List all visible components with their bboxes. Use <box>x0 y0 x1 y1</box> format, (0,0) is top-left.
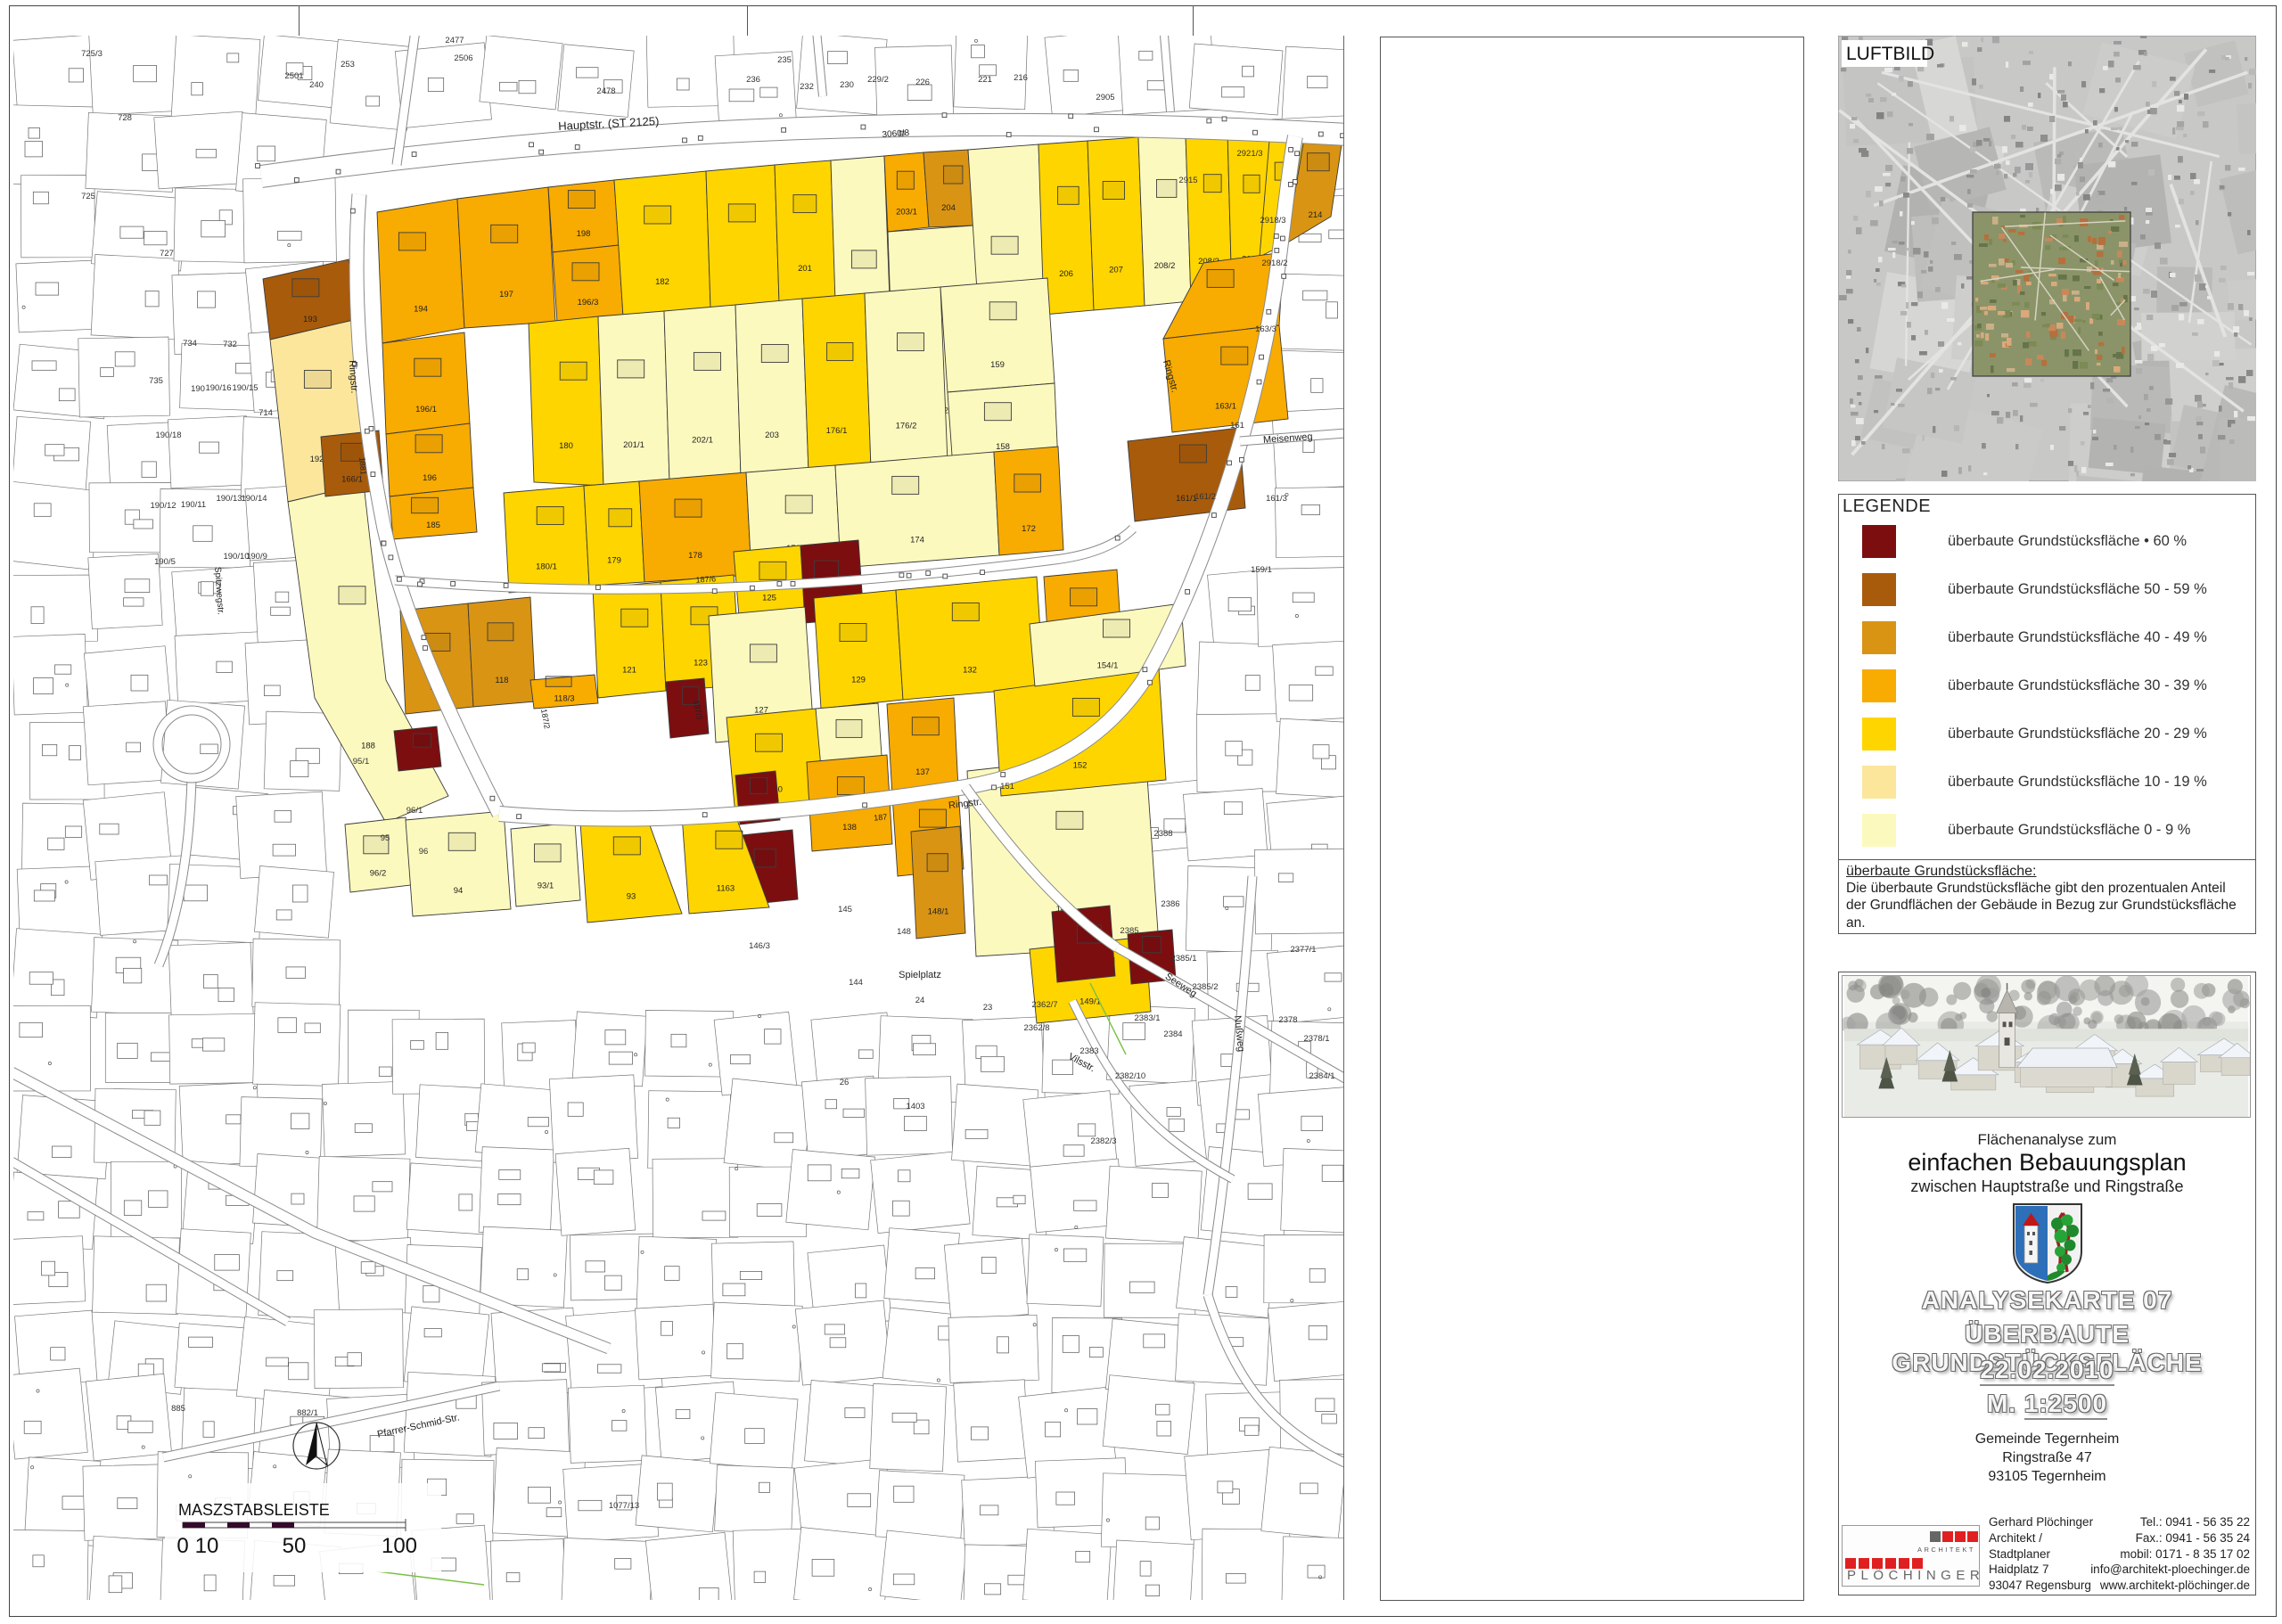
parcel-label: 190/12 <box>150 501 176 511</box>
parcel-label: 144 <box>849 978 863 988</box>
parcel-label: 216 <box>1014 73 1028 83</box>
svg-text:198: 198 <box>577 229 591 239</box>
parcel-label: 2385 <box>1120 926 1138 936</box>
svg-text:208/2: 208/2 <box>1154 261 1176 271</box>
svg-text:206: 206 <box>1059 269 1073 279</box>
parcel-label: 725/3 <box>81 49 103 59</box>
parcel-label: 734 <box>183 339 197 349</box>
heading-scale: M. 1:2500 <box>1839 1390 2255 1418</box>
logo-word-ploechinger: PLÖCHINGER <box>1847 1568 1984 1583</box>
parcel-label: 2477 <box>445 36 464 45</box>
parcel-label: 148 <box>897 927 911 937</box>
parcel-label: 732 <box>223 340 237 349</box>
street-label: 187/6 <box>695 574 716 585</box>
map-parcel <box>706 165 779 308</box>
aerial-photo: LUFTBILD <box>1838 36 2256 481</box>
svg-text:152: 152 <box>1073 761 1088 771</box>
svg-text:180/1: 180/1 <box>536 562 557 572</box>
parcel-label: 2501 <box>284 71 303 81</box>
parcel-label: 2382/3 <box>1090 1136 1116 1146</box>
parcel-label: 190/13 <box>216 494 242 504</box>
svg-text:201: 201 <box>798 264 812 274</box>
map-parcel-196 <box>386 423 473 496</box>
svg-text:174: 174 <box>910 535 924 545</box>
map-parcel-201/1 <box>598 311 669 486</box>
parcel-label: 232 <box>800 82 814 92</box>
parcel-label: 2918/3 <box>1260 216 1285 226</box>
map-parcel-179 <box>584 481 644 586</box>
parcel-label: 161 <box>1230 421 1244 431</box>
map-parcel-148/1 <box>911 826 965 939</box>
scale-bar: MASZSTABSLEISTE01050100 <box>165 1483 441 1572</box>
luftbild-panel: LUFTBILD <box>1838 36 2256 481</box>
parcel-label: 236 <box>746 75 760 85</box>
legend-rows: überbaute Grundstücksfläche • 60 %überba… <box>1839 517 2255 854</box>
parcel-label: 190/11 <box>181 500 206 510</box>
legend-item: überbaute Grundstücksfläche 0 - 9 % <box>1839 806 2255 854</box>
map-parcel <box>394 726 441 771</box>
parcel-label: 1403 <box>906 1102 924 1111</box>
parcel-label: 145 <box>838 905 852 915</box>
title-subtitle1: Flächenanalyse zum <box>1839 1131 2255 1149</box>
logo-word-architekt: ARCHITEKT <box>1917 1546 1975 1554</box>
map-parcel-94 <box>406 811 511 916</box>
parcel-label: 2385/1 <box>1170 954 1196 964</box>
parcel-label: 727 <box>160 249 174 258</box>
svg-text:203/1: 203/1 <box>896 207 917 217</box>
parcel-label: 725 <box>81 192 95 201</box>
parcel-label: 2378 <box>1278 1015 1297 1025</box>
legend-swatch <box>1862 621 1896 654</box>
parcel-label: 885 <box>171 1404 185 1414</box>
parcel-label: 2386 <box>1161 899 1179 909</box>
scale-tick: 10 <box>195 1534 219 1558</box>
parcel-label: 190/15 <box>232 383 258 393</box>
svg-text:125: 125 <box>762 594 776 603</box>
svg-text:204: 204 <box>941 203 956 213</box>
svg-text:182: 182 <box>655 277 669 287</box>
legend-title: LEGENDE <box>1839 495 2255 517</box>
legend-swatch <box>1862 814 1896 847</box>
map-parcel-196/3 <box>553 245 623 322</box>
legend-item: überbaute Grundstücksfläche 50 - 59 % <box>1839 565 2255 613</box>
svg-text:176/1: 176/1 <box>826 426 848 436</box>
svg-text:194: 194 <box>414 304 428 314</box>
legend-item: überbaute Grundstücksfläche 10 - 19 % <box>1839 758 2255 806</box>
parcel-label: 190 <box>191 384 205 394</box>
parcel-label: 161/3 <box>1266 494 1287 504</box>
svg-text:193: 193 <box>303 315 317 324</box>
map-parcel-96/2 <box>345 817 411 892</box>
svg-text:203: 203 <box>765 431 779 440</box>
map-parcel-180 <box>529 316 603 486</box>
heading-date: 22.02.2010 <box>1839 1356 2255 1384</box>
svg-text:166/1: 166/1 <box>341 475 363 485</box>
scale-bar-title: MASZSTABSLEISTE <box>178 1501 330 1519</box>
parcel-label: 2383/1 <box>1134 1013 1160 1023</box>
parcel-label: 2362/8 <box>1023 1023 1049 1033</box>
parcel-label: 96 <box>419 847 429 857</box>
svg-text:93: 93 <box>627 892 636 902</box>
map-parcel-174 <box>835 452 999 568</box>
plan-sheet: 193192188194197198196/3182201202203/1204… <box>0 0 2282 1624</box>
parcel-label: 95 <box>381 833 390 843</box>
parcel-label: 2388 <box>1153 829 1172 839</box>
parcel-label: 2918/2 <box>1261 258 1287 268</box>
map-parcel-204 <box>923 150 973 227</box>
parcel-label: 2362/7 <box>1031 1000 1057 1010</box>
map-parcel-176/1 <box>802 293 871 472</box>
legend-swatch <box>1862 573 1896 606</box>
svg-text:154/1: 154/1 <box>1097 661 1119 671</box>
legend-item: überbaute Grundstücksfläche 20 - 29 % <box>1839 709 2255 758</box>
map-parcel-180/1 <box>504 486 589 593</box>
parcel-label: 163/3 <box>1255 324 1276 334</box>
map-parcel-202/1 <box>664 305 741 481</box>
map-parcel-159 <box>940 278 1055 392</box>
map-parcel-203 <box>735 299 809 477</box>
parcel-label: 2378/1 <box>1303 1034 1329 1044</box>
svg-text:93/1: 93/1 <box>538 881 554 890</box>
svg-text:163/1: 163/1 <box>1215 402 1236 412</box>
svg-text:188: 188 <box>361 741 375 750</box>
parcel-label: 190/5 <box>154 557 176 567</box>
svg-text:94: 94 <box>454 886 464 896</box>
svg-text:180: 180 <box>559 441 573 451</box>
legend-swatch <box>1862 669 1896 702</box>
svg-text:202/1: 202/1 <box>692 435 713 445</box>
street-label: 187 <box>874 812 888 822</box>
legend-item: überbaute Grundstücksfläche 30 - 39 % <box>1839 661 2255 709</box>
parcel-label: 2921/3 <box>1236 149 1262 159</box>
map-parcel-93/1 <box>511 823 580 906</box>
svg-text:192: 192 <box>310 455 324 464</box>
map-parcel-203/1 <box>884 152 929 232</box>
cadastral-map: 193192188194197198196/3182201202203/1204… <box>13 36 1344 1600</box>
legend-label: überbaute Grundstücksfläche 0 - 9 % <box>1948 822 2190 839</box>
map-parcel-172 <box>994 447 1063 555</box>
legend-label: überbaute Grundstücksfläche 50 - 59 % <box>1948 581 2207 598</box>
parcel-label: 728 <box>118 113 132 123</box>
svg-text:121: 121 <box>622 665 636 675</box>
parcel-label: 24 <box>915 996 925 1005</box>
map-parcel-118 <box>468 597 536 707</box>
parcel-label: 159/1 <box>1251 565 1272 575</box>
svg-text:207: 207 <box>1109 265 1123 275</box>
map-parcel-207 <box>1088 137 1145 310</box>
parcel-label: 151 <box>1000 782 1014 791</box>
svg-text:96/2: 96/2 <box>370 869 387 879</box>
parcel-label: 2383 <box>1079 1046 1098 1056</box>
svg-text:118/3: 118/3 <box>554 694 574 704</box>
title-main: einfachen Bebauungsplan <box>1839 1149 2255 1177</box>
parcel-label: 221 <box>978 75 992 85</box>
architect-logo: ARCHITEKT PLÖCHINGER <box>1842 1525 1980 1587</box>
svg-text:185: 185 <box>426 521 440 530</box>
municipality-address: Gemeinde TegernheimRingstraße 4793105 Te… <box>1839 1431 2255 1486</box>
parcel-label: 1077/13 <box>609 1501 639 1511</box>
svg-text:132: 132 <box>963 666 977 676</box>
parcel-label: 229/2 <box>867 75 889 85</box>
parcel-label: 2478 <box>596 86 615 96</box>
svg-text:214: 214 <box>1309 210 1323 220</box>
legend-label: überbaute Grundstücksfläche 20 - 29 % <box>1948 726 2207 742</box>
parcel-label: 26 <box>840 1078 850 1087</box>
svg-text:197: 197 <box>499 290 513 299</box>
map-parcel-194 <box>377 199 464 343</box>
svg-text:179: 179 <box>607 555 621 565</box>
svg-text:196/3: 196/3 <box>578 298 599 308</box>
legend-swatch <box>1862 525 1896 558</box>
parcel-label: 230 <box>840 80 854 90</box>
svg-text:159: 159 <box>990 360 1005 370</box>
svg-text:138: 138 <box>842 823 857 833</box>
map-parcel-208/2 <box>1138 135 1191 306</box>
svg-text:178: 178 <box>688 551 702 561</box>
parcel-label: 240 <box>309 80 324 90</box>
svg-text:1163: 1163 <box>717 883 735 893</box>
architect-contact: Tel.: 0941 - 56 35 22Fax.: 0941 - 56 35 … <box>2090 1514 2250 1594</box>
legend-label: überbaute Grundstücksfläche 30 - 39 % <box>1948 677 2207 694</box>
legend-note-title: überbaute Grundstücksfläche: <box>1846 864 2248 880</box>
title-block: Flächenanalyse zum einfachen Bebauungspl… <box>1838 972 2256 1595</box>
luftbild-label: LUFTBILD <box>1846 44 1934 64</box>
parcel-label: 2385/2 <box>1192 982 1218 992</box>
scale-tick: 50 <box>283 1534 307 1558</box>
parcel-label: 2905 <box>1096 93 1114 103</box>
scale-tick: 100 <box>382 1534 417 1558</box>
svg-text:129: 129 <box>851 676 866 685</box>
street-label: 1881 <box>357 456 367 475</box>
parcel-label: 190/14 <box>241 494 267 504</box>
legend-label: überbaute Grundstücksfläche • 60 % <box>1948 533 2187 550</box>
parcel-label: 190/9 <box>246 552 267 562</box>
legend-panel: LEGENDE überbaute Grundstücksfläche • 60… <box>1838 494 2256 934</box>
legend-item: überbaute Grundstücksfläche • 60 % <box>1839 517 2255 565</box>
legend-label: überbaute Grundstücksfläche 10 - 19 % <box>1948 774 2207 791</box>
svg-text:172: 172 <box>1022 524 1036 534</box>
map-parcel-197 <box>457 187 555 328</box>
cadastral-map-panel: 193192188194197198196/3182201202203/1204… <box>13 36 1344 1600</box>
parcel-label: 190/18 <box>155 431 181 440</box>
svg-text:196: 196 <box>423 473 437 483</box>
svg-text:148/1: 148/1 <box>928 906 949 916</box>
village-photo <box>1842 975 2251 1118</box>
parcel-label: 2915 <box>1178 176 1197 185</box>
svg-text:118: 118 <box>495 676 508 685</box>
svg-text:196/1: 196/1 <box>415 405 437 414</box>
parcel-label: 96/1 <box>406 806 423 816</box>
parcel-label: 23 <box>983 1003 993 1013</box>
map-parcel-121 <box>593 582 666 698</box>
street-label: 3060/8 <box>882 128 910 140</box>
empty-panel <box>1380 37 1804 1601</box>
map-parcel-196/1 <box>382 332 470 434</box>
legend-swatch <box>1862 766 1896 799</box>
coat-of-arms <box>2012 1202 2083 1284</box>
heading-analysekarte: ANALYSEKARTE 07 <box>1839 1286 2255 1315</box>
map-parcel-176/2 <box>865 287 948 468</box>
parcel-label: 882/1 <box>297 1408 318 1418</box>
legend-swatch <box>1862 718 1896 750</box>
legend-item: überbaute Grundstücksfläche 40 - 49 % <box>1839 613 2255 661</box>
svg-text:201/1: 201/1 <box>623 440 644 450</box>
svg-text:123: 123 <box>694 658 708 668</box>
parcel-label: 2384/1 <box>1309 1071 1334 1081</box>
map-parcel-201 <box>775 160 835 302</box>
parcel-label: 2506 <box>454 53 472 63</box>
parcel-label: 253 <box>341 60 355 70</box>
parcel-label: 190/16 <box>205 383 231 393</box>
map-parcel-132 <box>896 577 1044 700</box>
parcel-label: 226 <box>915 78 930 87</box>
parcel-label: 146/3 <box>749 941 770 951</box>
parcel-label: 161/2 <box>1194 492 1216 502</box>
parcel-label: 2384 <box>1163 1029 1182 1039</box>
title-subtitle2: zwischen Hauptstraße und Ringstraße <box>1839 1177 2255 1196</box>
legend-label: überbaute Grundstücksfläche 40 - 49 % <box>1948 629 2207 646</box>
legend-note: überbaute Grundstücksfläche: Die überbau… <box>1839 859 2255 941</box>
parcel-label: 714 <box>259 408 273 418</box>
parcel-label: 235 <box>777 55 792 65</box>
map-parcel-129 <box>814 590 903 709</box>
parcel-label: 95/1 <box>353 757 370 767</box>
scale-tick: 0 <box>176 1534 188 1558</box>
parcel-label: 2382/10 <box>1115 1071 1145 1081</box>
street-label: Spielplatz <box>899 970 941 980</box>
architect-info: Gerhard PlöchingerArchitekt /Stadtplaner… <box>1989 1514 2093 1594</box>
legend-note-body: Die überbaute Grundstücksfläche gibt den… <box>1846 880 2248 931</box>
map-parcel-137 <box>887 698 958 796</box>
svg-text:176/2: 176/2 <box>896 421 917 431</box>
map-parcel-182 <box>614 171 710 316</box>
svg-text:137: 137 <box>915 767 930 777</box>
parcel-label: 2377/1 <box>1290 945 1316 955</box>
parcel-label: 735 <box>149 376 163 386</box>
